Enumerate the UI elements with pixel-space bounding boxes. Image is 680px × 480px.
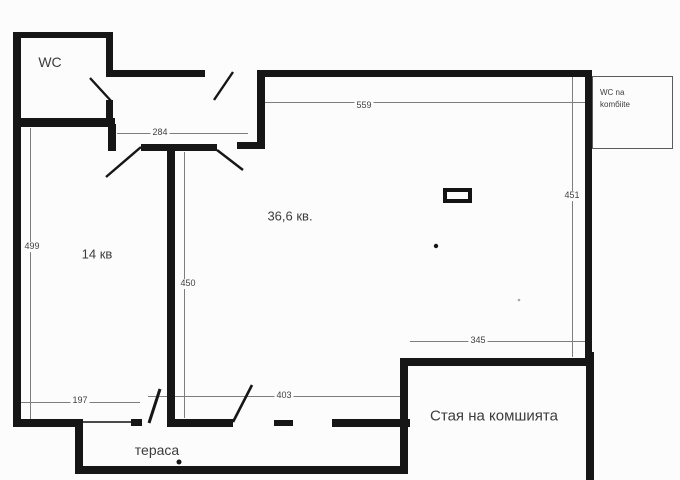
room-label-366kv: 36,6 кв. <box>267 209 312 224</box>
dimension-label-197: 197 <box>70 396 89 406</box>
wall <box>585 70 592 366</box>
dimension-label-451: 451 <box>562 191 581 201</box>
wall <box>141 144 217 151</box>
wall <box>75 466 408 474</box>
dimension-label-345: 345 <box>468 336 487 346</box>
wall <box>400 358 408 474</box>
door-swing-terrace-mid <box>233 385 252 422</box>
window-line <box>83 421 133 423</box>
wall <box>106 32 113 77</box>
wall <box>106 100 113 122</box>
dot-mark <box>434 244 438 248</box>
dimension-label-499: 499 <box>22 242 41 252</box>
wall <box>13 126 21 427</box>
door-swing-entry <box>214 72 233 100</box>
wall <box>108 124 116 151</box>
door-swing-room14 <box>106 147 141 177</box>
floor-plan: WC na komбiite <box>0 0 680 480</box>
door-swing-wc <box>90 78 112 102</box>
dimension-line-499 <box>30 128 31 420</box>
dimension-label-403: 403 <box>274 391 293 401</box>
dimension-line-284 <box>117 133 248 134</box>
wall <box>167 144 175 427</box>
wall <box>13 118 115 127</box>
wall <box>400 358 594 366</box>
wall <box>237 142 265 149</box>
dimension-line-345 <box>410 341 585 342</box>
door-swing-room366 <box>217 150 243 170</box>
wall <box>332 419 410 427</box>
dimension-label-284: 284 <box>150 128 169 138</box>
dimension-line-559 <box>265 102 588 103</box>
wall <box>175 419 233 427</box>
dot-mark <box>177 460 182 465</box>
shaft-rectangle <box>443 188 472 203</box>
room-label-terrace: тераса <box>135 442 179 458</box>
wall <box>113 70 205 77</box>
dimension-label-450: 450 <box>178 279 197 289</box>
dimension-line-451 <box>572 74 573 357</box>
wall <box>586 352 594 480</box>
wall <box>257 70 265 148</box>
dot-mark <box>518 299 521 302</box>
wall <box>13 32 21 127</box>
wall <box>262 70 592 77</box>
neighbor-wc-label: WC na komбiite <box>600 87 630 110</box>
neighbor-wc-label-line2: komбiite <box>600 99 630 111</box>
wall <box>274 420 293 426</box>
door-swing-terrace-left <box>149 389 160 423</box>
room-label-neighbor: Стая на комшията <box>430 408 558 425</box>
room-label-14kv: 14 кв <box>82 247 113 262</box>
wall <box>131 419 142 426</box>
wall <box>13 419 75 427</box>
dimension-label-559: 559 <box>354 101 373 111</box>
neighbor-wc-label-line1: WC na <box>600 87 630 99</box>
room-label-wc: WC <box>38 54 61 70</box>
wall <box>13 32 113 38</box>
